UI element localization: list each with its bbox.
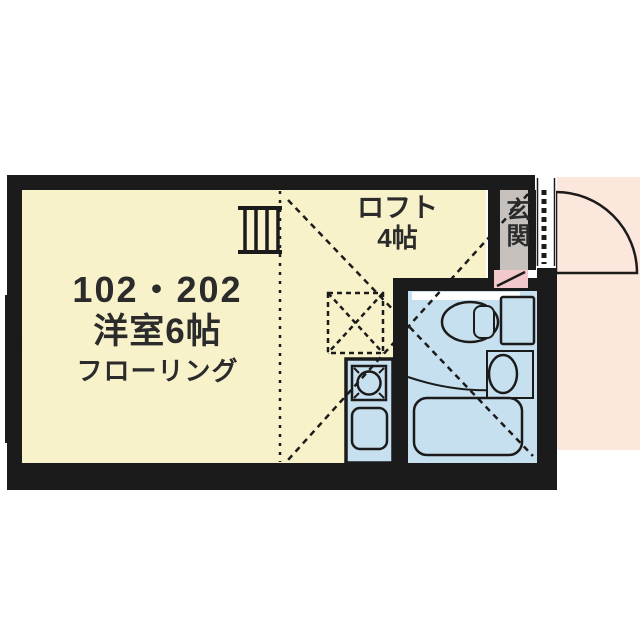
bathtub-icon — [414, 398, 522, 455]
wall-top — [7, 175, 535, 190]
flooring-label: フローリング — [40, 357, 275, 385]
outside-area — [557, 177, 640, 450]
floor-plan: 102・202 洋室6帖 フローリング ロフト 4帖 玄関 — [0, 0, 640, 640]
loft-size-label: 4帖 — [345, 224, 450, 252]
entrance-step — [494, 270, 528, 288]
washbasin-icon — [487, 351, 533, 398]
room-type-label: 洋室6帖 — [40, 313, 275, 351]
wall-entrance-right — [528, 190, 536, 270]
wall-bottom — [7, 463, 557, 490]
unit-number-label: 102・202 — [40, 271, 275, 310]
loft-label: ロフト — [345, 194, 450, 223]
wall-bath-left — [393, 278, 408, 463]
kitchen-unit — [346, 359, 393, 463]
entrance-label: 玄関 — [502, 197, 528, 267]
kitchen-sink-icon — [352, 408, 387, 449]
wall-right — [537, 265, 557, 490]
